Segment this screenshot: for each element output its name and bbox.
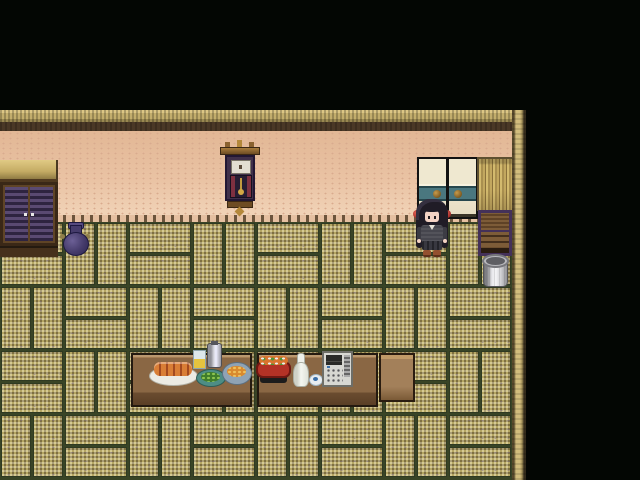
tatami-mat <box>65 319 127 349</box>
tatami-mat <box>193 223 223 285</box>
skewer-plate[interactable] <box>149 366 198 386</box>
chest-slats <box>481 232 509 247</box>
noodle-bowl[interactable] <box>222 362 252 385</box>
sake-cup[interactable] <box>309 374 323 386</box>
clock-face <box>231 160 251 174</box>
tatami-mat <box>65 415 127 445</box>
chest-foot <box>481 248 509 253</box>
wall-clock[interactable] <box>220 140 260 214</box>
bucket[interactable] <box>482 254 509 288</box>
tatami-mat <box>193 319 255 349</box>
clock-cornice <box>220 147 260 155</box>
tatami-mat <box>257 223 319 253</box>
tatami-mat <box>97 351 127 413</box>
character-eye <box>428 216 430 219</box>
skewers <box>154 362 192 376</box>
character-shoe <box>433 250 441 257</box>
character-eye <box>434 216 436 219</box>
clock-finials <box>237 140 242 147</box>
bamboo-screen <box>477 157 512 211</box>
jug-body <box>63 232 89 256</box>
wardrobe-doors[interactable] <box>0 182 58 246</box>
tatami-mat <box>321 319 383 349</box>
pendulum-bob <box>238 189 244 195</box>
tatami-mat <box>257 287 287 349</box>
tatami-mat <box>225 223 255 285</box>
tatami-mat <box>449 319 511 349</box>
wardrobe-base <box>0 246 58 257</box>
bench[interactable] <box>379 353 415 402</box>
sake-bottle[interactable] <box>293 353 309 387</box>
tatami-mat <box>1 383 63 413</box>
character-hand <box>417 239 421 243</box>
wooden-chest[interactable] <box>478 210 512 256</box>
wardrobe-door-left[interactable] <box>5 187 28 241</box>
tatami-mat <box>449 447 511 477</box>
tatami-mat <box>417 415 447 477</box>
tatami-mat <box>321 223 351 285</box>
tatami-mat <box>65 447 127 477</box>
drink-glass[interactable] <box>193 350 206 369</box>
appliance-screen <box>326 355 342 365</box>
tatami-mat <box>129 415 159 477</box>
clock-drape <box>247 176 251 197</box>
tatami-mat <box>193 287 255 317</box>
tatami-mat <box>1 287 31 349</box>
tatami-mat <box>129 223 191 253</box>
tatami-mat <box>321 415 383 445</box>
tatami-mat <box>289 287 319 349</box>
tatami-mat <box>449 223 479 285</box>
tatami-mat <box>129 255 191 285</box>
character-shoe <box>423 250 431 257</box>
tatami-mat <box>33 287 63 349</box>
tatami-mat <box>65 351 95 413</box>
appliance[interactable] <box>322 351 353 387</box>
purple-jug[interactable] <box>61 220 90 256</box>
tatami-floor <box>0 222 512 480</box>
chest-top <box>481 213 509 232</box>
wardrobe-door-right[interactable] <box>30 187 53 241</box>
player-character[interactable] <box>413 198 451 260</box>
tatami-mat <box>449 287 511 317</box>
sliding-door-right[interactable] <box>449 159 476 217</box>
tatami-mat <box>257 415 287 477</box>
appliance-buttons <box>326 368 343 383</box>
tatami-mat <box>193 415 255 445</box>
door-pull <box>454 190 462 198</box>
tatami-mat <box>97 223 127 285</box>
door-pull <box>433 190 441 198</box>
character-skirt <box>422 241 442 250</box>
tatami-mat <box>289 415 319 477</box>
tatami-mat <box>193 447 255 477</box>
tatami-mat <box>1 415 31 477</box>
game-viewport <box>0 0 640 480</box>
wardrobe-knob <box>24 213 27 216</box>
appliance-vents <box>344 355 350 377</box>
bottle-body <box>293 362 309 387</box>
tatami-mat <box>385 415 415 477</box>
wardrobe-top <box>0 160 58 182</box>
tatami-mat <box>321 447 383 477</box>
top-beam-shadow <box>0 122 526 131</box>
tatami-mat <box>481 351 511 413</box>
tatami-mat <box>385 287 415 349</box>
wardrobe[interactable] <box>0 160 58 257</box>
tatami-mat <box>449 351 479 413</box>
clock-drape <box>231 176 235 197</box>
right-wall-beam <box>512 110 526 480</box>
tatami-mat <box>321 287 383 317</box>
bucket-interior <box>486 257 505 265</box>
wardrobe-knob <box>31 213 34 216</box>
tatami-mat <box>161 415 191 477</box>
hot-pot[interactable] <box>256 354 291 383</box>
top-wall-beam <box>0 110 526 122</box>
tatami-mat <box>65 287 127 317</box>
metal-flask[interactable] <box>207 343 222 368</box>
salad <box>201 372 220 382</box>
tatami-mat <box>33 415 63 477</box>
tatami-mat <box>417 287 447 349</box>
noodles <box>227 366 246 377</box>
tatami-mat <box>1 351 63 381</box>
character-bangs <box>422 206 442 212</box>
tatami-mat <box>257 255 319 285</box>
clock-case <box>225 155 255 201</box>
tatami-mat <box>449 415 511 445</box>
tatami-mat <box>161 287 191 349</box>
pot-contents <box>259 356 288 365</box>
tatami-mat <box>129 287 159 349</box>
character-hand <box>443 239 447 243</box>
clock-pendulum-window <box>230 175 252 198</box>
tatami-mat <box>353 223 383 285</box>
door-rail <box>449 214 476 217</box>
tatami-mat <box>1 255 63 285</box>
